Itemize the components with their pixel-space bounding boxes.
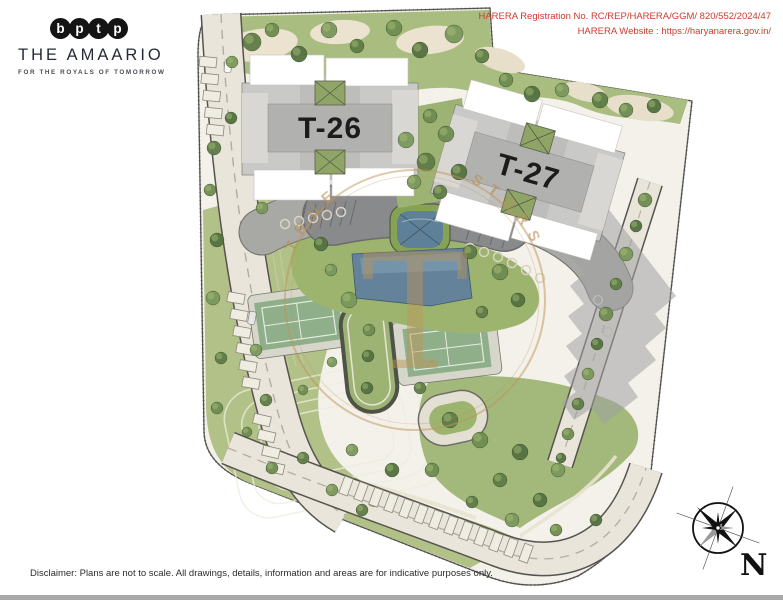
harera-website: HARERA Website : https://haryanarera.gov…: [478, 24, 771, 39]
watermark-monogram: T: [362, 219, 469, 406]
brand-block: b p t p THE AMAARIO FOR THE ROYALS OF TO…: [18, 18, 160, 76]
harera-block: HARERA Registration No. RC/REP/HARERA/GG…: [478, 9, 771, 39]
bptp-logo: b p t p: [18, 18, 160, 39]
tower-t26-label: T-26: [298, 112, 362, 145]
harera-registration: HARERA Registration No. RC/REP/HARERA/GG…: [478, 9, 771, 24]
compass-north-label: N: [740, 548, 767, 583]
project-title: THE AMAARIO: [18, 46, 160, 65]
bottom-edge-bar: [0, 595, 783, 600]
site-plan-page: T-26 T-27 T TRUE STORS N: [0, 0, 783, 600]
site-plan-illustration: T-26 T-27 T TRUE STORS N: [0, 0, 783, 600]
project-tagline: FOR THE ROYALS OF TOMORROW: [18, 69, 160, 76]
logo-disc-t: t: [88, 18, 109, 39]
disclaimer-text: Disclaimer: Plans are not to scale. All …: [30, 568, 493, 579]
logo-disc-b: b: [50, 18, 71, 39]
logo-disc-p1: p: [69, 18, 90, 39]
compass-rose: N: [662, 472, 775, 585]
logo-disc-p2: p: [107, 18, 128, 39]
